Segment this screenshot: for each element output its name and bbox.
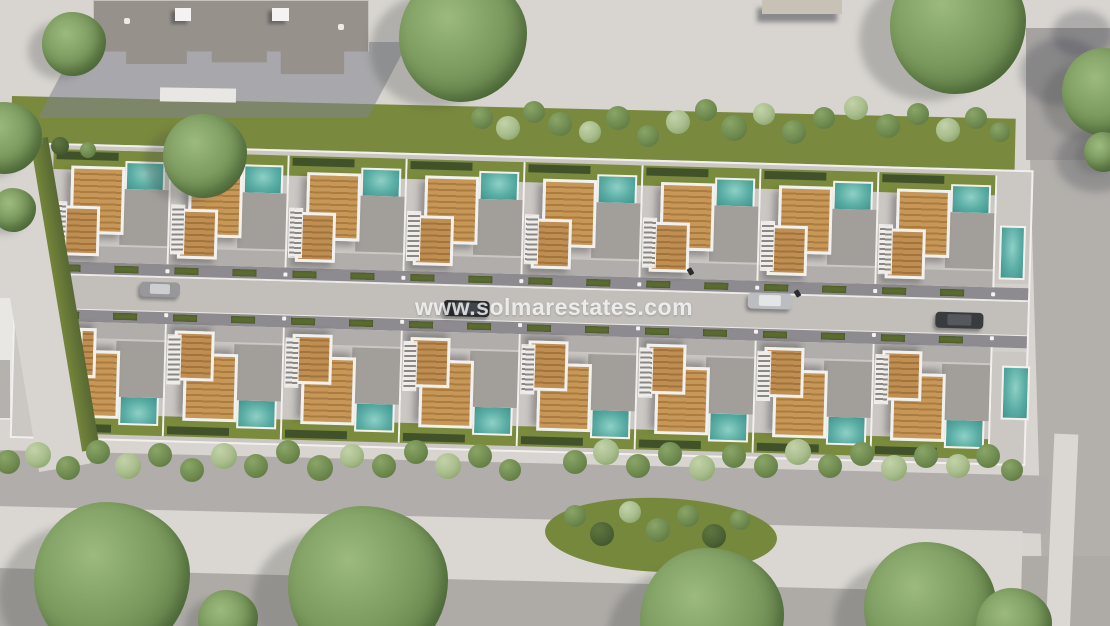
terrace <box>115 341 167 398</box>
exterior-stairs <box>406 211 421 261</box>
street-planter <box>703 329 727 337</box>
terrace <box>119 189 171 246</box>
swimming-pool <box>479 171 520 202</box>
street-planter <box>882 287 906 295</box>
street-planter <box>822 286 846 294</box>
terrace <box>351 347 403 404</box>
shrub <box>666 110 690 134</box>
shrub <box>471 107 493 129</box>
garden-hedge <box>646 168 708 178</box>
street-planter <box>881 334 905 342</box>
shrub <box>115 453 141 479</box>
shrub <box>372 454 396 478</box>
shrub <box>276 440 300 464</box>
gate-pillar <box>754 330 758 334</box>
shrub <box>435 453 461 479</box>
shrub <box>646 518 670 542</box>
exterior-stairs <box>760 221 775 271</box>
street-planter <box>763 331 787 339</box>
shrub <box>658 442 682 466</box>
swimming-pool <box>361 168 402 199</box>
shrub <box>180 458 204 482</box>
street-planter <box>940 289 964 297</box>
neighbor-building-roof <box>0 360 10 418</box>
shrub <box>523 101 545 123</box>
villa-plot <box>754 341 875 456</box>
shrub <box>563 450 587 474</box>
gate-pillar <box>282 316 286 320</box>
shrub <box>307 455 333 481</box>
terrace <box>233 344 285 401</box>
terrace <box>355 195 407 252</box>
terrace <box>709 205 761 262</box>
swimming-pool <box>118 395 159 426</box>
street-planter <box>646 281 670 289</box>
exterior-stairs <box>642 217 657 267</box>
street-planter <box>232 269 256 277</box>
shrub <box>211 443 237 469</box>
villa-plot <box>640 165 761 280</box>
street-planter <box>114 266 138 274</box>
exterior-stairs <box>878 224 893 274</box>
watermark-text: www.solmarestates.com <box>404 294 704 321</box>
swimming-pool <box>236 398 277 429</box>
villa-plot <box>523 162 644 277</box>
shrub <box>468 444 492 468</box>
shrub <box>86 440 110 464</box>
shrub <box>936 118 960 142</box>
shrub <box>56 456 80 480</box>
terrace <box>587 354 639 411</box>
shrub <box>579 121 601 143</box>
shrub <box>548 112 572 136</box>
gate-pillar <box>637 282 641 286</box>
exterior-stairs <box>402 341 417 391</box>
swimming-pool <box>944 418 985 449</box>
gate-pillar <box>518 323 522 327</box>
shrub <box>695 99 717 121</box>
terrace <box>827 209 879 266</box>
shrub <box>702 524 726 548</box>
parked-car <box>748 292 792 309</box>
gate-pillar <box>873 289 877 293</box>
street-planter <box>113 313 137 321</box>
swimming-pool <box>1001 366 1030 421</box>
exterior-stairs <box>520 344 535 394</box>
villa-plot <box>282 328 403 443</box>
swimming-pool <box>590 408 631 439</box>
shrub <box>593 439 619 465</box>
street-planter <box>468 276 492 284</box>
swimming-pool <box>472 405 513 436</box>
parked-car <box>140 281 180 297</box>
shrub <box>818 454 842 478</box>
street-planter <box>645 328 669 336</box>
swimming-pool <box>708 411 749 442</box>
shrub <box>907 103 929 125</box>
street-planter <box>764 284 788 292</box>
shrub <box>946 454 970 478</box>
garden-hedge <box>167 426 229 436</box>
street-planter <box>527 324 551 332</box>
entrance-path <box>160 87 236 102</box>
swimming-pool <box>999 225 1026 280</box>
small-roof-structure <box>762 0 842 14</box>
shrub <box>844 96 868 120</box>
terrace <box>941 364 993 421</box>
car-roof <box>947 314 971 326</box>
shrub <box>785 439 811 465</box>
terrace <box>469 351 521 408</box>
gate-pillar <box>636 326 640 330</box>
swimming-pool <box>950 184 991 215</box>
terrace <box>237 192 289 249</box>
villa-plot <box>518 334 639 449</box>
villa-plot <box>872 344 993 459</box>
shrub <box>881 455 907 481</box>
shrub <box>606 106 630 130</box>
rooftop-vent <box>124 18 130 24</box>
shrub <box>677 505 699 527</box>
shrub <box>722 444 746 468</box>
street-planter <box>528 277 552 285</box>
swimming-pool <box>596 174 637 205</box>
shrub <box>626 454 650 478</box>
shrub <box>244 454 268 478</box>
villa-plot <box>164 324 285 439</box>
party-wall <box>988 347 993 459</box>
street-planter <box>939 336 963 344</box>
garden-hedge <box>521 436 583 446</box>
gate-pillar <box>401 276 405 280</box>
villa-plot <box>400 331 521 446</box>
shrub <box>689 455 715 481</box>
shrub <box>564 505 586 527</box>
exterior-stairs <box>288 208 303 258</box>
villa-plot <box>405 159 526 274</box>
terrace <box>473 199 525 256</box>
gate-pillar <box>755 286 759 290</box>
street-planter <box>174 267 198 275</box>
street-planter <box>291 318 315 326</box>
exterior-stairs <box>874 354 889 404</box>
shrub <box>148 443 172 467</box>
shrub <box>914 444 938 468</box>
exterior-stairs <box>170 204 185 254</box>
shrub <box>1001 459 1023 481</box>
shrub <box>590 522 614 546</box>
shrub <box>25 442 51 468</box>
garden-hedge <box>528 164 590 174</box>
terrace <box>945 212 997 269</box>
shrub <box>976 444 1000 468</box>
rooftop-vent <box>338 24 344 30</box>
gate-pillar <box>990 336 994 340</box>
gate-pillar <box>165 269 169 273</box>
swimming-pool <box>714 177 755 208</box>
street-planter <box>173 314 197 322</box>
garden-hedge <box>292 158 354 168</box>
street-planter <box>231 316 255 324</box>
street-planter <box>821 332 845 340</box>
villa-plot <box>287 156 408 271</box>
street-planter <box>349 319 373 327</box>
shrub <box>730 510 750 530</box>
exterior-stairs <box>166 334 181 384</box>
street-planter <box>350 272 374 280</box>
shrub <box>619 501 641 523</box>
villa-plot <box>636 337 757 452</box>
garden-hedge <box>882 174 944 184</box>
street-planter <box>409 321 433 329</box>
street-planter <box>704 282 728 290</box>
aerial-render: www.solmarestates.com <box>0 0 1110 626</box>
shrub <box>51 137 69 155</box>
shrub <box>813 107 835 129</box>
exterior-stairs <box>524 214 539 264</box>
rooftop-ac-unit <box>175 8 191 21</box>
garden-hedge <box>410 161 472 171</box>
shrub <box>637 125 659 147</box>
garden-hedge <box>285 430 347 440</box>
exterior-stairs <box>638 347 653 397</box>
parked-car <box>935 312 983 329</box>
street-planter <box>292 271 316 279</box>
terrace <box>823 361 875 418</box>
terrace <box>705 357 757 414</box>
shrub <box>340 444 364 468</box>
terrace <box>591 202 643 259</box>
shrub <box>753 103 775 125</box>
villa-plot <box>876 172 997 287</box>
exterior-stairs <box>756 351 771 401</box>
street-planter <box>410 274 434 282</box>
shrub <box>499 459 521 481</box>
shrub <box>782 120 806 144</box>
shrub <box>496 116 520 140</box>
exterior-stairs <box>284 338 299 388</box>
garden-hedge <box>764 171 826 181</box>
swimming-pool <box>354 402 395 433</box>
rooftop-ac-unit <box>272 8 289 21</box>
gate-pillar <box>519 279 523 283</box>
shrub <box>876 114 900 138</box>
shrub <box>990 122 1010 142</box>
street-planter <box>467 323 491 331</box>
villa-plot <box>758 169 879 284</box>
shrub <box>965 107 987 129</box>
gate-pillar <box>164 313 168 317</box>
swimming-pool <box>832 181 873 212</box>
shrub <box>404 440 428 464</box>
swimming-pool <box>243 164 284 195</box>
car-roof <box>150 284 170 295</box>
shrub <box>721 115 747 141</box>
gate-pillar <box>872 333 876 337</box>
gate-pillar <box>283 272 287 276</box>
shrub <box>754 454 778 478</box>
car-roof <box>759 295 781 306</box>
shrub <box>80 142 96 158</box>
shrub <box>850 442 874 466</box>
gate-pillar <box>991 292 995 296</box>
street-planter <box>585 326 609 334</box>
street-planter <box>586 279 610 287</box>
